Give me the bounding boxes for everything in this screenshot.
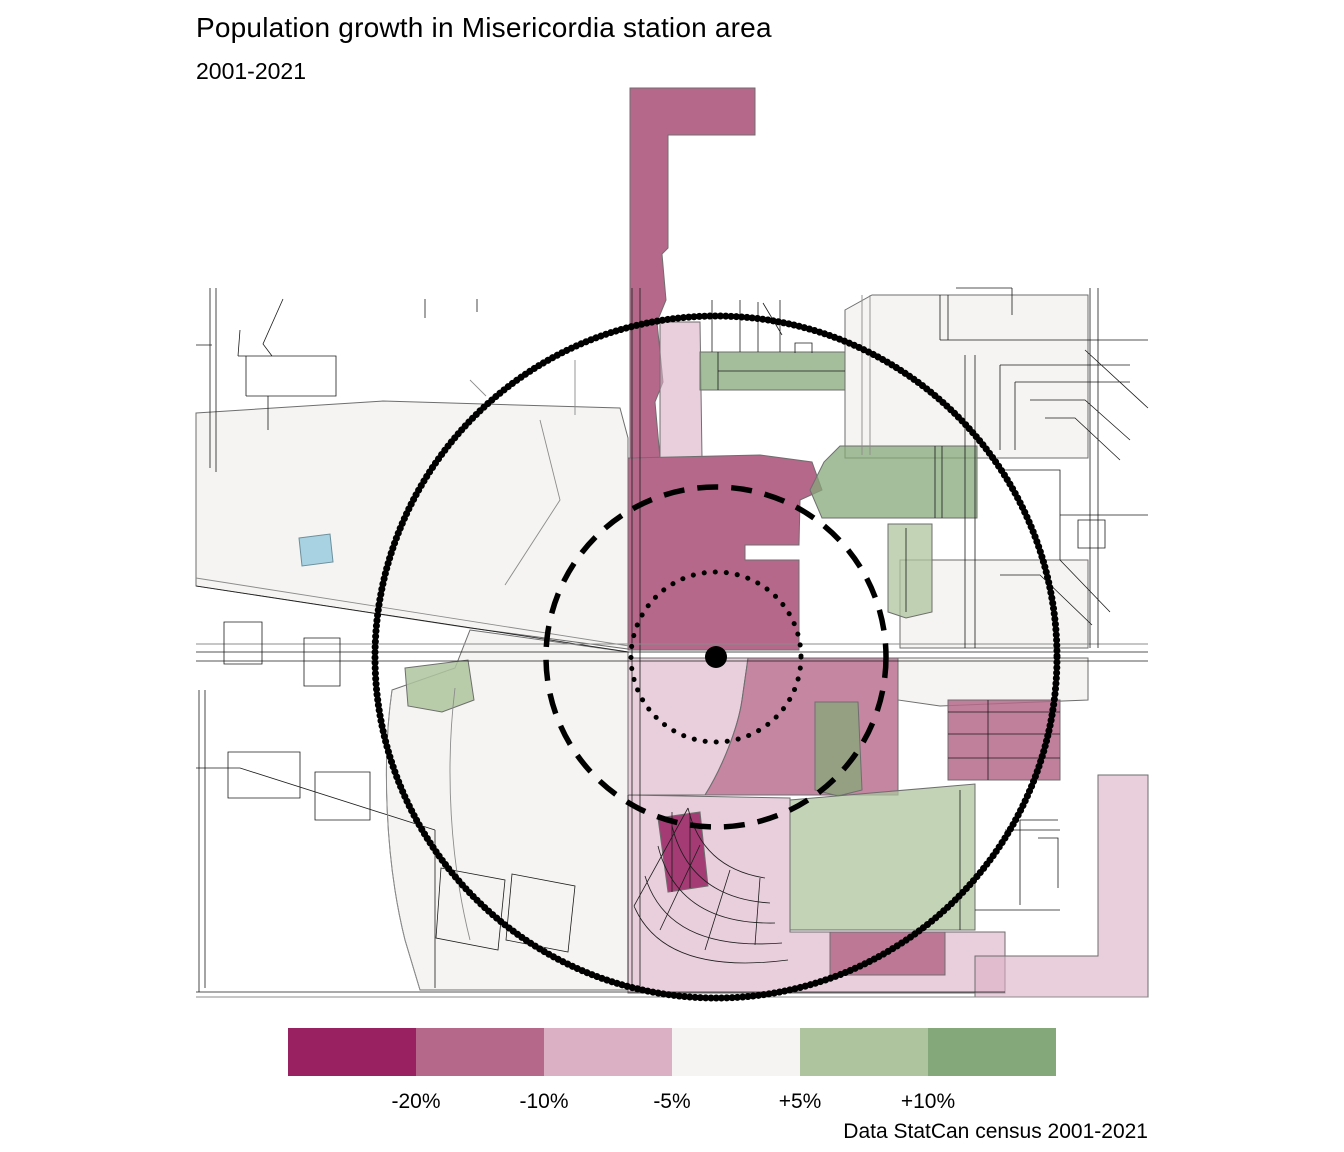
census-tract [845,295,1088,458]
map-canvas [0,0,1344,1152]
station-marker [705,646,727,668]
census-tract [405,660,474,712]
pond [299,534,333,566]
page-subtitle: 2001-2021 [196,58,306,85]
page-title: Population growth in Misericordia statio… [196,12,772,44]
data-source-caption: Data StatCan census 2001-2021 [648,1120,1148,1144]
legend-swatch [800,1028,928,1076]
census-tract [975,775,1148,997]
legend-swatch [288,1028,416,1076]
legend-color-bar [288,1028,1056,1076]
legend-label: +10% [883,1090,973,1114]
census-tract [810,446,977,518]
legend-swatch [672,1028,800,1076]
legend-swatch [928,1028,1056,1076]
legend-label: -10% [499,1090,589,1114]
census-tract-central [628,455,822,650]
legend-swatch [416,1028,544,1076]
legend-swatch [544,1028,672,1076]
legend-label: +5% [755,1090,845,1114]
census-tract [660,322,702,458]
legend-label: -20% [371,1090,461,1114]
census-tract [815,702,862,796]
census-tract [898,658,1088,706]
legend-label: -5% [627,1090,717,1114]
census-tract [888,524,932,618]
